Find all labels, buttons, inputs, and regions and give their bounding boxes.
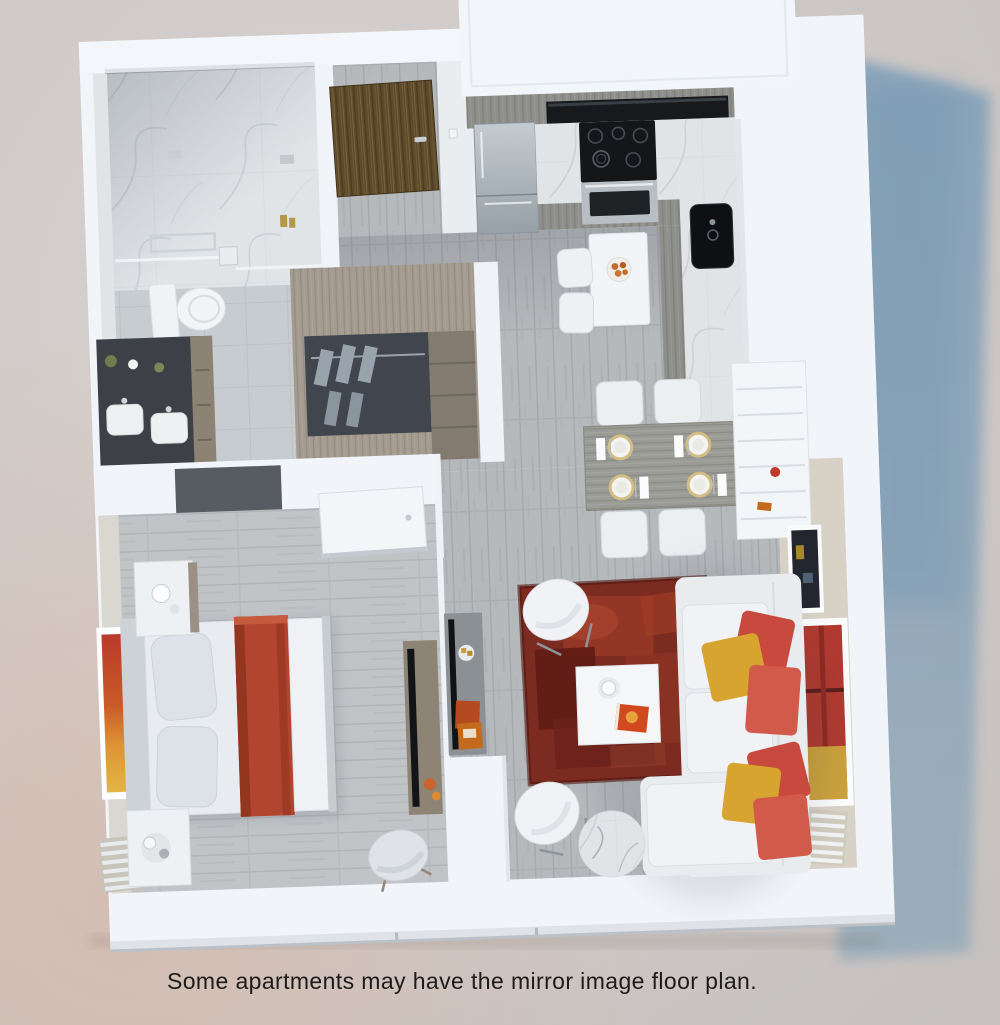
dining-chair bbox=[596, 381, 644, 427]
books bbox=[757, 502, 772, 511]
shower-bracket bbox=[219, 247, 238, 266]
floor-plan-render bbox=[0, 0, 1000, 1025]
coffee-cup bbox=[601, 681, 615, 695]
apartment bbox=[69, 0, 896, 953]
vanity bbox=[96, 336, 217, 472]
nightstand bbox=[127, 809, 192, 887]
tv-console-bedroom bbox=[403, 640, 443, 815]
entry-door bbox=[330, 80, 439, 197]
shower-drain bbox=[280, 155, 294, 164]
door-handle bbox=[414, 137, 426, 143]
shampoo-bottles bbox=[280, 215, 287, 227]
throw-pillow-red bbox=[752, 793, 812, 860]
floor-plan-image: Some apartments may have the mirror imag… bbox=[0, 0, 1000, 1025]
bed bbox=[120, 612, 337, 821]
dining-chair bbox=[600, 511, 648, 559]
bed-pillow bbox=[150, 632, 218, 722]
walk-in-closet bbox=[290, 262, 505, 469]
sink bbox=[106, 404, 143, 435]
kitchen-chair bbox=[560, 293, 594, 333]
breakfast-table bbox=[589, 232, 650, 326]
dining-table bbox=[583, 421, 748, 511]
cup bbox=[152, 584, 171, 603]
caption: Some apartments may have the mirror imag… bbox=[0, 968, 924, 995]
tv-console-living bbox=[444, 612, 487, 755]
bed-pillow bbox=[156, 726, 217, 807]
roof-block bbox=[458, 0, 798, 97]
coffee-table bbox=[576, 664, 661, 745]
kitchen-sink bbox=[690, 203, 734, 268]
kitchen-chair bbox=[557, 248, 594, 288]
throw-pillow-red bbox=[745, 665, 802, 736]
shower-head bbox=[168, 151, 182, 159]
sink bbox=[151, 413, 188, 444]
doorway-opening bbox=[175, 465, 282, 513]
stove bbox=[579, 120, 659, 225]
nightstand bbox=[134, 560, 200, 636]
bedroom bbox=[85, 454, 449, 903]
dining-chair bbox=[654, 379, 702, 425]
shelf-unit bbox=[731, 361, 811, 539]
dining-chair bbox=[658, 509, 706, 557]
fruit-bowl bbox=[607, 257, 632, 282]
sliding-door bbox=[319, 487, 427, 559]
refrigerator bbox=[474, 122, 539, 234]
light-switch bbox=[449, 129, 457, 138]
book bbox=[614, 704, 649, 733]
bathroom bbox=[87, 62, 329, 476]
duvet-fold bbox=[288, 618, 329, 811]
